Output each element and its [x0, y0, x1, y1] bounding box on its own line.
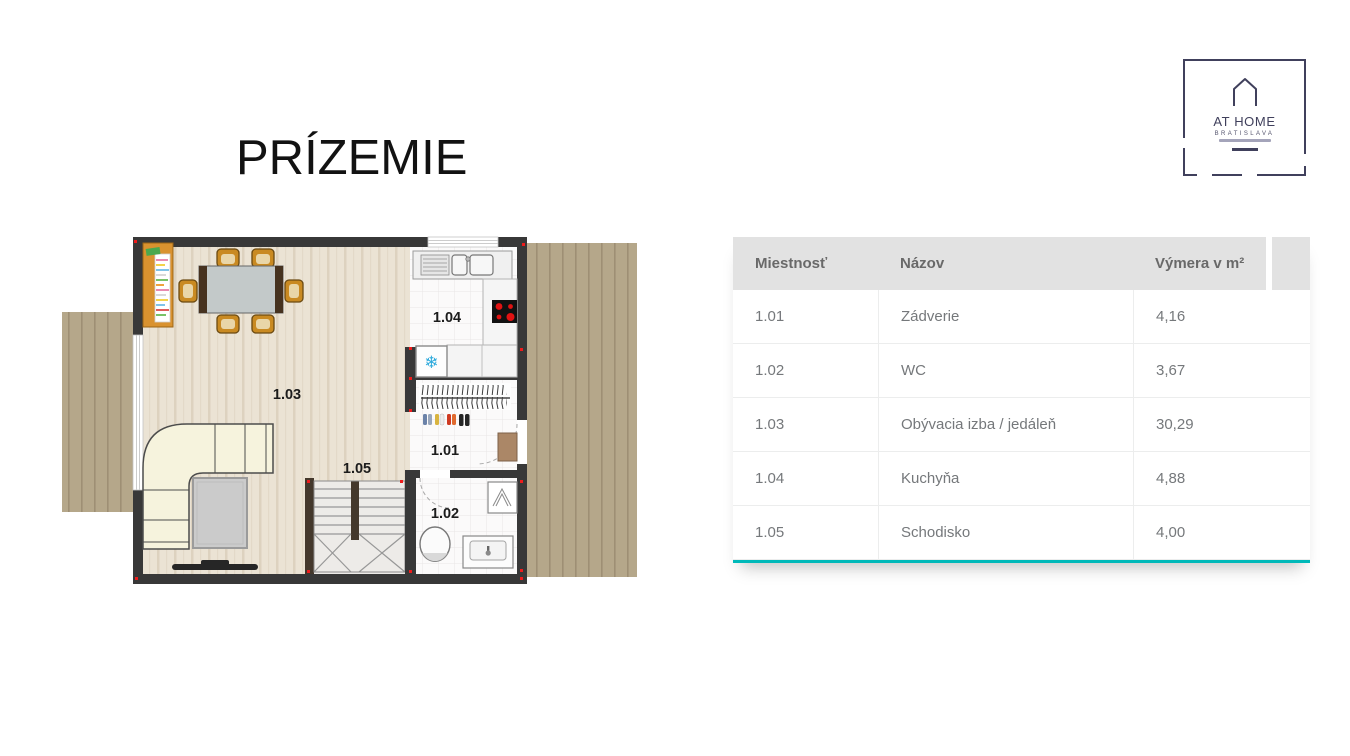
room-name: Zádverie: [878, 290, 1133, 343]
room-id: 1.01: [733, 290, 878, 343]
logo-border-gap: [1183, 138, 1185, 148]
page-title: PRÍZEMIE: [236, 130, 467, 186]
logo-border-gap: [1304, 154, 1306, 166]
room-area: 4,88: [1133, 452, 1266, 505]
table-header: Miestnosť Názov Výmera v m²: [733, 237, 1310, 290]
dining-chair: [285, 280, 303, 302]
table-row: 1.02 WC 3,67: [733, 344, 1310, 398]
room-name: Obývacia izba / jedáleň: [878, 398, 1133, 451]
coffee-table: [193, 478, 247, 548]
dining-chair: [252, 315, 274, 333]
column-header-area: Výmera v m²: [1133, 255, 1266, 272]
logo-brand: AT HOME: [1185, 114, 1304, 129]
room-area: 3,67: [1133, 344, 1266, 397]
interior-wall: [405, 470, 416, 574]
table-row: 1.05 Schodisko 4,00: [733, 506, 1310, 560]
left-terrace: [62, 312, 133, 512]
entry-door-opening: [517, 420, 527, 464]
bookshelf: [143, 243, 173, 327]
room-label-living: 1.03: [273, 387, 301, 403]
room-id: 1.03: [733, 398, 878, 451]
logo-tagline-placeholder: [1219, 139, 1271, 142]
kitchen-counter-sink: [413, 251, 512, 279]
wc-door-opening: [420, 470, 450, 478]
sink-basin-small: [452, 255, 467, 275]
staircase: [305, 478, 405, 574]
page: PRÍZEMIE AT HOME BRATISLAVA: [0, 0, 1350, 756]
toilet: [420, 527, 450, 562]
room-label-stairs: 1.05: [343, 461, 371, 477]
room-area: 30,29: [1133, 398, 1266, 451]
logo-underline: [1232, 148, 1258, 151]
column-header-name: Názov: [878, 255, 1133, 272]
faucet: [466, 257, 470, 261]
fridge: ❄: [416, 346, 447, 377]
room-area: 4,00: [1133, 506, 1266, 559]
column-header-room: Miestnosť: [733, 255, 878, 272]
washbasin: [463, 536, 513, 568]
stove: [492, 300, 517, 323]
house-icon: [1185, 77, 1304, 112]
room-id: 1.02: [733, 344, 878, 397]
table-row: 1.04 Kuchyňa 4,88: [733, 452, 1310, 506]
room-name: WC: [878, 344, 1133, 397]
snowflake-icon: ❄: [424, 353, 438, 373]
right-terrace: [527, 243, 637, 577]
dining-chair: [252, 249, 274, 267]
room-label-hall: 1.01: [431, 443, 459, 459]
room-id: 1.05: [733, 506, 878, 559]
room-name: Kuchyňa: [878, 452, 1133, 505]
room-name: Schodisko: [878, 506, 1133, 559]
dining-chair: [217, 315, 239, 333]
hangers: [421, 385, 507, 409]
floor-plan: ❄: [55, 228, 645, 593]
table-row: 1.01 Zádverie 4,16: [733, 290, 1310, 344]
table-accent-underline: [733, 560, 1310, 563]
window-left: [133, 335, 143, 490]
dining-chair: [217, 249, 239, 267]
room-label-wc: 1.02: [431, 506, 459, 522]
logo-city: BRATISLAVA: [1185, 131, 1304, 137]
dining-chair: [179, 280, 197, 302]
rooms-table: Miestnosť Názov Výmera v m² 1.01 Zádveri…: [733, 237, 1310, 563]
room-area: 4,16: [1133, 290, 1266, 343]
room-id: 1.04: [733, 452, 878, 505]
doormat: [498, 433, 517, 461]
room-label-kitchen: 1.04: [433, 310, 461, 326]
logo-border-gap: [1197, 174, 1212, 176]
logo-border-gap: [1242, 174, 1257, 176]
window-top: [428, 237, 498, 247]
logo: AT HOME BRATISLAVA: [1183, 59, 1306, 176]
sink-basin-large: [470, 255, 493, 275]
wardrobe: [419, 383, 511, 410]
dining-table: [199, 266, 283, 313]
header-end-cell: [1272, 237, 1310, 290]
table-row: 1.03 Obývacia izba / jedáleň 30,29: [733, 398, 1310, 452]
radiator: [488, 482, 517, 513]
